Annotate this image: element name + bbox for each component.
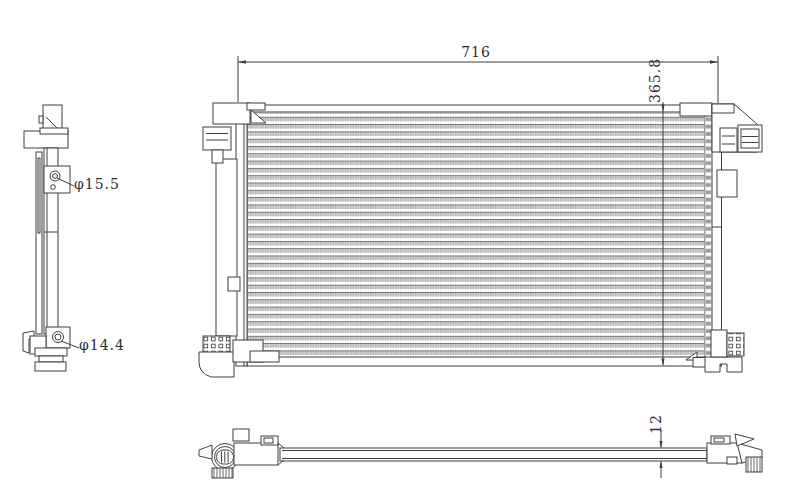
drier-bracket-pad	[717, 170, 737, 197]
upper-port-hole	[50, 171, 60, 181]
dim-12-arrow-top	[659, 441, 662, 448]
dim-width-label: 716	[436, 45, 516, 59]
right-small-pad	[727, 457, 737, 464]
side-top-notch	[39, 116, 43, 123]
bottom-left-foot	[199, 352, 234, 377]
left-wedge-tab	[199, 445, 212, 459]
drier-bottom	[711, 330, 727, 357]
port-bottom-diameter-label: φ14.4	[79, 338, 125, 352]
side-upper-bracket-step	[40, 128, 68, 134]
side-core-edge	[36, 152, 42, 334]
bottom-slab	[280, 448, 707, 461]
top-right-bracket-step	[712, 104, 734, 113]
dim-12-arrow-bottom	[659, 461, 662, 468]
left-hatched-foot	[212, 468, 233, 478]
mid-left-tab	[228, 277, 240, 291]
right-flag-tab	[735, 434, 754, 446]
dim-height-label: 365.8	[648, 58, 662, 103]
side-view	[23, 105, 79, 371]
top-right-bracket-base	[680, 103, 712, 116]
right-hatched-foot	[746, 457, 762, 472]
port-top-diameter-label: φ15.5	[74, 177, 120, 191]
top-left-connector	[203, 127, 231, 150]
dim-thickness-label: 12	[649, 414, 663, 434]
left-tank	[236, 108, 247, 367]
condenser-technical-drawing: 716 365.8 φ15.5 φ14.4 12	[0, 0, 800, 502]
bottom-view	[199, 429, 762, 478]
bottom-right-connector	[727, 333, 744, 356]
tube-ends	[706, 113, 713, 357]
top-left-tab	[212, 150, 223, 163]
top-right-connector-a	[720, 128, 737, 152]
side-foot-step3	[35, 362, 66, 371]
side-foot-step2	[39, 356, 63, 362]
top-left-bracket	[213, 103, 250, 124]
side-foot-step1	[35, 348, 67, 356]
bottom-right-foot	[705, 357, 742, 372]
fitting-chamfer	[278, 443, 284, 448]
left-air-seal	[216, 159, 237, 336]
side-top-tab	[43, 105, 62, 131]
dim-716-arrow-left	[238, 60, 246, 63]
bottom-left-bracket-step	[250, 351, 279, 362]
left-fitting-block	[234, 443, 278, 465]
dim-716-arrow-right	[710, 60, 718, 63]
core-fins	[248, 113, 704, 357]
top-left-bracket-step	[247, 103, 265, 110]
left-top-tab	[233, 429, 249, 441]
front-view	[199, 103, 762, 377]
drawing-linework	[0, 0, 800, 502]
